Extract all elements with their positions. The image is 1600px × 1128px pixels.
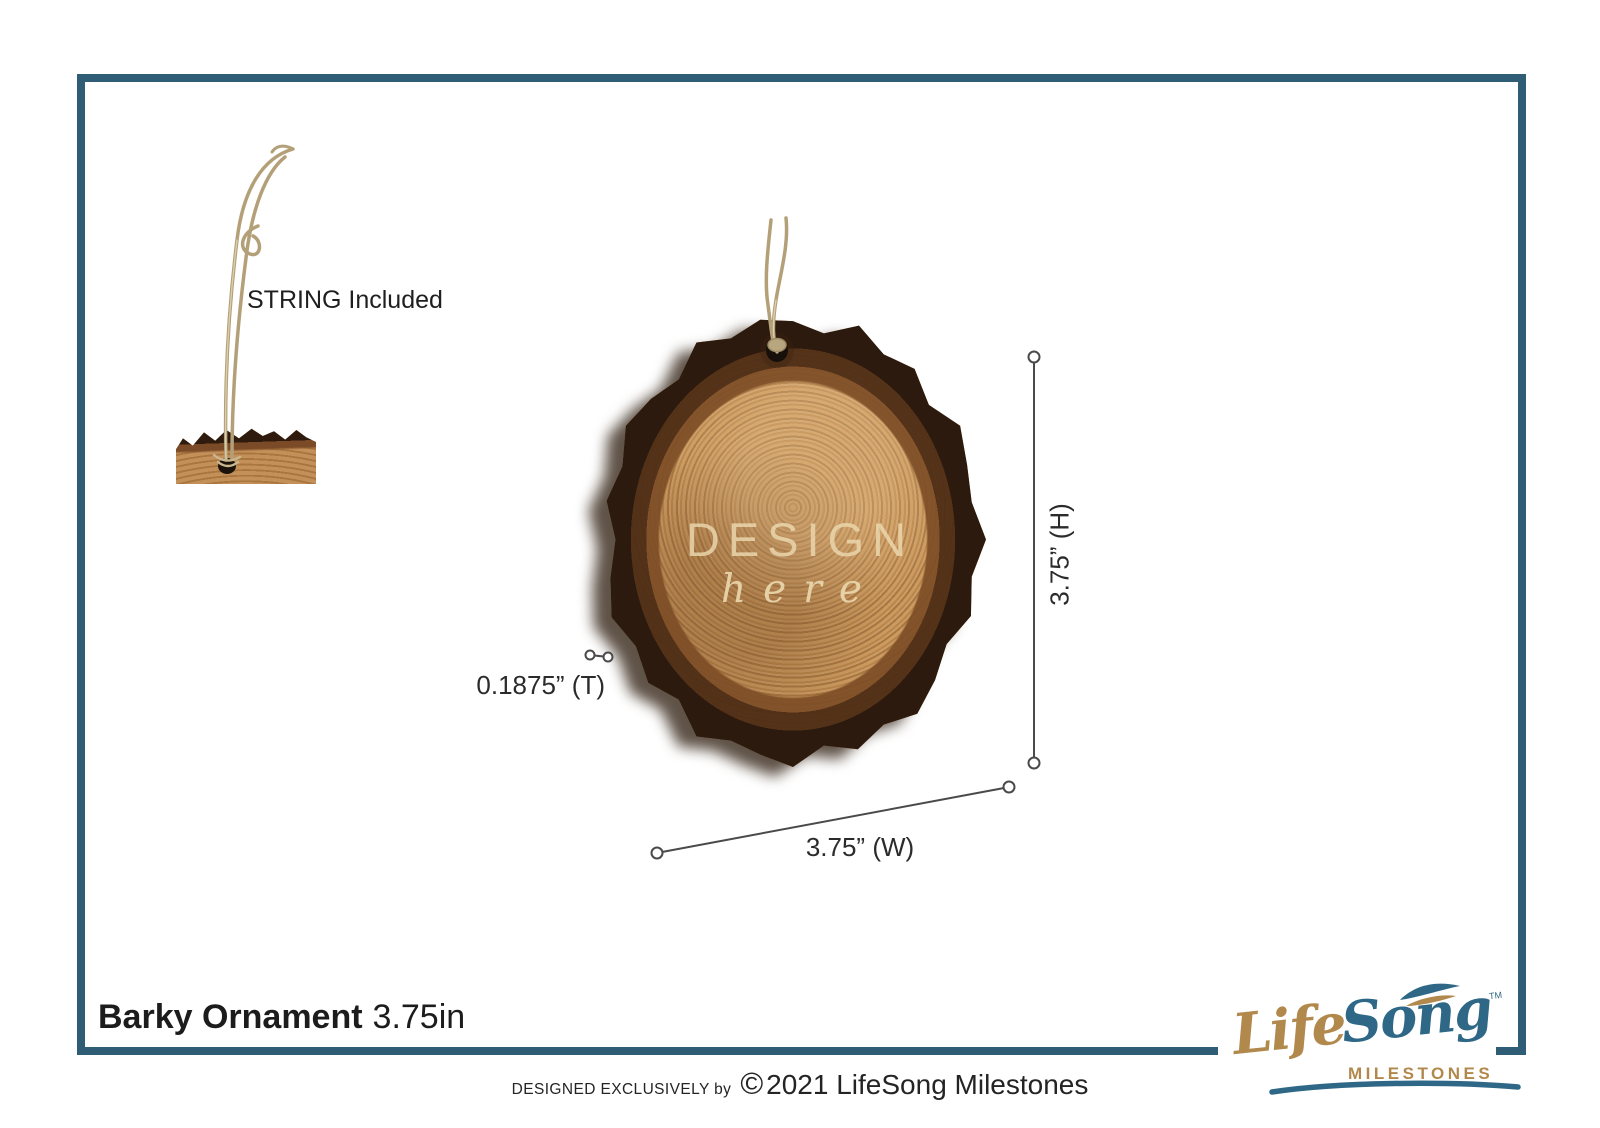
footer-prefix: DESIGNED EXCLUSIVELY by — [512, 1081, 732, 1099]
lifesong-logo: LifeSongTM MILESTONES — [1218, 966, 1496, 1124]
ornament-hole — [766, 339, 788, 362]
barky-ornament-image: DESIGN here — [600, 312, 986, 767]
copyright-icon: © — [740, 1068, 763, 1099]
watermark-design-text: DESIGN — [614, 512, 986, 567]
logo-song-text: Song — [1338, 975, 1494, 1056]
width-dimension-label: 3.75” (W) — [795, 832, 925, 863]
logo-underline-swoosh-icon — [1268, 1078, 1524, 1098]
thickness-dimension-label: 0.1875” (T) — [470, 670, 605, 701]
wood-slice: DESIGN here — [600, 312, 986, 767]
watermark-here-text: here — [614, 567, 986, 612]
logo-life-text: Life — [1229, 991, 1348, 1068]
footer-company: 2021 LifeSong Milestones — [766, 1069, 1088, 1101]
trademark-symbol: TM — [1489, 990, 1503, 1001]
design-here-watermark: DESIGN here — [614, 512, 986, 612]
height-dimension-label: 3.75” (H) — [1045, 495, 1076, 615]
string-included-label: STRING Included — [247, 286, 443, 315]
string-hole — [218, 458, 236, 474]
logo-wordmark: LifeSongTM — [1229, 974, 1506, 1068]
product-size: 3.75in — [373, 998, 466, 1036]
product-title: Barky Ornament3.75in — [98, 998, 465, 1037]
product-name: Barky Ornament — [98, 998, 363, 1036]
